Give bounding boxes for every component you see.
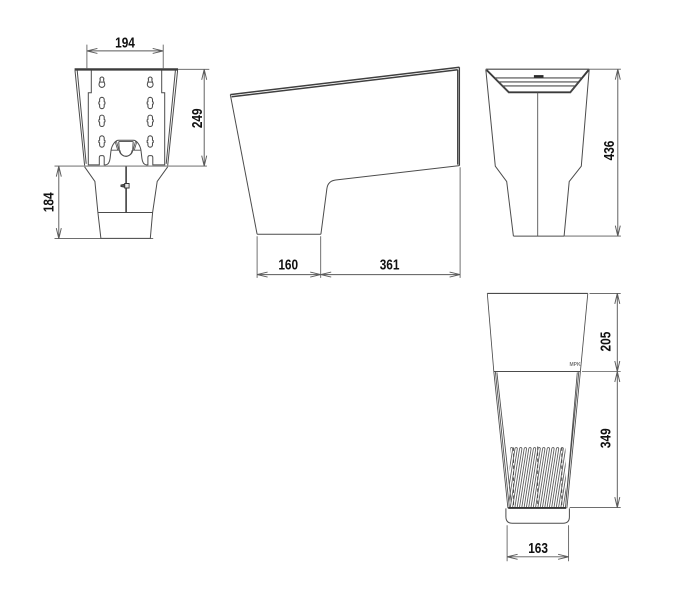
svg-text:MPK: MPK [569, 362, 581, 368]
svg-text:160: 160 [278, 256, 298, 273]
svg-text:361: 361 [380, 256, 400, 273]
svg-text:205: 205 [597, 331, 614, 351]
svg-text:349: 349 [597, 428, 614, 448]
svg-text:436: 436 [600, 140, 617, 160]
svg-text:184: 184 [40, 192, 57, 212]
svg-text:163: 163 [528, 539, 548, 556]
svg-text:249: 249 [188, 108, 205, 128]
svg-text:194: 194 [115, 34, 135, 51]
